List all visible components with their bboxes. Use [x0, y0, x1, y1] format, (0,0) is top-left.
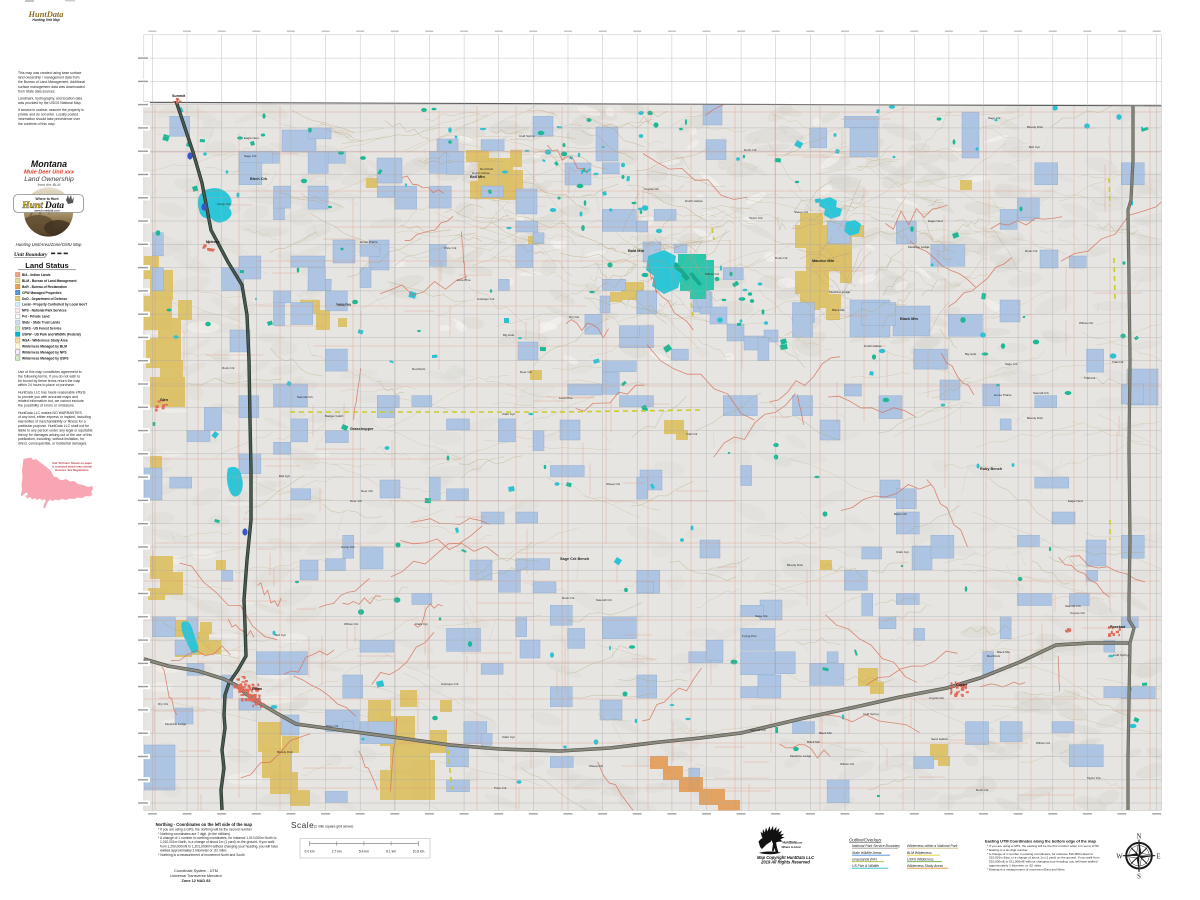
svg-text:Use of this map constitutes ag: Use of this map constitutes agreement to: [18, 370, 82, 374]
svg-text:Price Crk: Price Crk: [494, 786, 507, 790]
svg-text:from State data sources.: from State data sources.: [18, 89, 55, 93]
svg-text:Medicine Lodge: Medicine Lodge: [790, 754, 812, 758]
svg-text:Rock Crk: Rock Crk: [1025, 249, 1038, 253]
svg-text:Sheep Crk: Sheep Crk: [606, 482, 621, 486]
svg-text:Price Crk: Price Crk: [326, 724, 339, 728]
svg-text:Taylor Crk: Taylor Crk: [749, 216, 763, 220]
svg-text:Willow Crk: Willow Crk: [344, 622, 359, 626]
svg-text:E: E: [1156, 853, 1160, 860]
svg-text:Medicine Lodge: Medicine Lodge: [908, 245, 930, 249]
svg-text:S: S: [1137, 874, 1141, 881]
svg-text:Eagle Nest: Eagle Nest: [1068, 499, 1083, 503]
svg-text:Bald Mtn: Bald Mtn: [628, 249, 645, 253]
svg-text:USFS Wilderness: USFS Wilderness: [907, 858, 934, 862]
svg-text:Grasslands (NF): Grasslands (NF): [852, 858, 877, 862]
svg-text:Bloody Dick: Bloody Dick: [277, 750, 293, 754]
svg-text:(2 mile square grid above): (2 mile square grid above): [314, 825, 353, 829]
svg-text:particular purpose. HuntData: particular purpose. HuntData LLC shall n…: [18, 424, 89, 428]
svg-text:Sawmill Crk: Sawmill Crk: [297, 395, 313, 399]
svg-text:Wilderness Managed by USFS: Wilderness Managed by USFS: [22, 356, 69, 360]
svg-text:Antelope Crk: Antelope Crk: [477, 297, 495, 301]
svg-text:Deer Crk: Deer Crk: [520, 370, 533, 374]
svg-text:the following terms. If you: the following terms. If you do not wish …: [18, 374, 80, 378]
svg-text:Melrose: Melrose: [206, 240, 220, 244]
svg-text:* Easting is a measurement of: * Easting is a measurement of movement E…: [987, 867, 1065, 871]
svg-text:Rock Crk: Rock Crk: [222, 366, 235, 370]
svg-text:Dutch Hollow: Dutch Hollow: [864, 344, 883, 348]
svg-text:Hunting Unit Map: Hunting Unit Map: [32, 18, 59, 22]
svg-text:Birch Crk: Birch Crk: [250, 177, 268, 181]
svg-text:Wilderness Managed by NPS: Wilderness Managed by NPS: [22, 350, 67, 354]
svg-text:Local - Property Controlled by: Local - Property Controlled by Local Gov…: [22, 303, 88, 307]
svg-text:the Bureau of Land Management.: the Bureau of Land Management. Additiona…: [18, 80, 85, 84]
svg-text:Lone Pine: Lone Pine: [559, 396, 573, 400]
svg-text:BLM Wilderness: BLM Wilderness: [907, 851, 932, 855]
svg-text:publication, including, withou: publication, including, without limitati…: [18, 437, 85, 441]
svg-text:8.1 km: 8.1 km: [386, 850, 396, 854]
svg-text:Sage Crk: Sage Crk: [755, 614, 768, 618]
svg-text:Outline/Overlays: Outline/Overlays: [849, 838, 882, 843]
svg-text:Rock Crk: Rock Crk: [976, 788, 989, 792]
svg-text:Black Mtn: Black Mtn: [807, 740, 821, 744]
svg-text:Wilderness Managed by BLM: Wilderness Managed by BLM: [22, 344, 67, 348]
svg-text:Custer: Custer: [956, 683, 968, 687]
svg-text:from the BLM: from the BLM: [38, 183, 62, 187]
svg-text:Montana: Montana: [31, 159, 67, 169]
svg-text:NPS - National Park Services: NPS - National Park Services: [22, 309, 67, 313]
svg-text:Sawmill Crk: Sawmill Crk: [1033, 391, 1049, 395]
svg-text:Horse Prairie: Horse Prairie: [360, 240, 378, 244]
svg-text:private and do not enter. Loc: private and do not enter. Locally posted: [18, 113, 78, 117]
svg-text:National Park Service Boundary: National Park Service Boundary: [852, 844, 900, 848]
svg-text:the possibility of errors or o: the possibility of errors or omissions.: [18, 404, 75, 408]
svg-text:Frying Pan: Frying Pan: [742, 634, 757, 638]
svg-text:Dry Crk: Dry Crk: [158, 702, 169, 706]
svg-text:warranties of merchantability: warranties of merchantability or fitness…: [18, 420, 86, 424]
svg-text:closures. See Regulations.: closures. See Regulations.: [55, 468, 89, 472]
svg-text:Rock Crk: Rock Crk: [562, 596, 575, 600]
svg-text:Basin Crk: Basin Crk: [894, 512, 908, 516]
svg-text:Sand Hollow: Sand Hollow: [931, 737, 949, 741]
svg-text:Big Hole: Big Hole: [503, 333, 515, 337]
svg-text:W: W: [1116, 853, 1123, 860]
svg-text:Easting UTM Coordinates along: Easting UTM Coordinates along the bottom…: [985, 839, 1097, 844]
svg-text:of any kind, either express or: of any kind, either express or implied, …: [18, 415, 91, 419]
svg-text:Dry Crk: Dry Crk: [569, 315, 580, 319]
svg-text:Red Rock: Red Rock: [480, 167, 494, 171]
svg-text:* Northing is a measurement of: * Northing is a measurement of movement …: [158, 853, 245, 857]
svg-text:Bell Mtn: Bell Mtn: [470, 175, 485, 179]
svg-text:2.7 km: 2.7 km: [332, 850, 342, 854]
svg-text:Coyote Crk: Coyote Crk: [644, 187, 660, 191]
svg-text:N: N: [1137, 834, 1142, 841]
svg-text:Ruby Bench: Ruby Bench: [980, 467, 1003, 471]
svg-text:Trail Crk: Trail Crk: [1084, 376, 1096, 380]
svg-text:WSA - Wilderness Study Area: WSA - Wilderness Study Area: [22, 338, 68, 342]
svg-text:Medicine Lodge: Medicine Lodge: [165, 722, 187, 726]
svg-text:Sawmill Crk: Sawmill Crk: [1065, 604, 1081, 608]
svg-text:Rosebud: Rosebud: [1110, 625, 1125, 629]
svg-text:Antelope Crk: Antelope Crk: [441, 682, 459, 686]
svg-text:Northing - Coordinates on the: Northing - Coordinates on the left side …: [156, 822, 253, 827]
svg-text:Maurice Mtn: Maurice Mtn: [812, 259, 835, 263]
svg-text:DoD - Department of Defense: DoD - Department of Defense: [22, 297, 67, 301]
svg-text:Taylor Crk: Taylor Crk: [1087, 776, 1101, 780]
svg-text:be bound by these terms return: be bound by these terms return the map: [18, 379, 80, 383]
svg-text:Land Ownership: Land Ownership: [24, 176, 74, 183]
svg-text:Pvt - Private Land: Pvt - Private Land: [22, 315, 49, 319]
svg-text:HuntData LLC makes NO WARRANTI: HuntData LLC makes NO WARRANTIES: [18, 411, 83, 415]
svg-text:Hunting Unit/Area/Zone/GMU Map: Hunting Unit/Area/Zone/GMU Map: [16, 242, 82, 247]
svg-text:This map was created using bas: This map was created using base surface: [18, 71, 82, 75]
svg-text:Sawmill Crk: Sawmill Crk: [596, 598, 612, 602]
svg-text:Sage Crk Bench: Sage Crk Bench: [560, 557, 590, 561]
svg-text:Dutch Hollow: Dutch Hollow: [685, 199, 704, 203]
svg-text:was provided by the USGS Natio: was provided by the USGS National Map.: [18, 101, 81, 105]
svg-text:Lone Pine: Lone Pine: [457, 278, 471, 282]
svg-text:Red Rock: Red Rock: [987, 654, 1001, 658]
svg-text:Deer Crk: Deer Crk: [361, 489, 374, 493]
svg-text:Willow Crk: Willow Crk: [840, 762, 855, 766]
svg-text:BoR - Bureau of Reclamation: BoR - Bureau of Reclamation: [22, 285, 67, 289]
svg-text:Badger Gulch: Badger Gulch: [325, 414, 344, 418]
svg-text:direct, consequential, or inci: direct, consequential, or incidental dam…: [18, 442, 87, 446]
svg-text:Where to Hunt: Where to Hunt: [782, 845, 802, 849]
svg-text:BIA - Indian Lands: BIA - Indian Lands: [22, 273, 51, 277]
svg-text:USFS - US Forest Service: USFS - US Forest Service: [22, 327, 62, 331]
svg-text:Black Mtn: Black Mtn: [900, 317, 919, 321]
svg-text:US Fish & Wildlife: US Fish & Wildlife: [852, 864, 879, 868]
svg-text:Black Mtn: Black Mtn: [997, 650, 1011, 654]
svg-text:Eagle Nest: Eagle Nest: [928, 219, 943, 223]
svg-text:Dillon: Dillon: [252, 687, 262, 691]
svg-text:Zone 12 NAD 83: Zone 12 NAD 83: [182, 879, 211, 883]
svg-text:Sheep Crk: Sheep Crk: [589, 764, 604, 768]
svg-text:2019 All Rights Reserved: 2019 All Rights Reserved: [760, 860, 810, 865]
svg-text:Black Mtn: Black Mtn: [832, 308, 846, 312]
svg-text:Unit Boundary: Unit Boundary: [14, 252, 48, 258]
svg-text:USFW - US Park and Wildlife (F: USFW - US Park and Wildlife (Federal): [22, 333, 81, 337]
svg-text:Bloody Dick: Bloody Dick: [1027, 125, 1043, 129]
svg-text:Cold Spring: Cold Spring: [519, 134, 535, 138]
svg-text:Rock Crk: Rock Crk: [775, 256, 788, 260]
svg-text:Wilderness Study Areas: Wilderness Study Areas: [907, 864, 943, 868]
svg-text:Camp Crk: Camp Crk: [341, 545, 355, 549]
svg-text:Bloody Dick: Bloody Dick: [787, 563, 803, 567]
svg-text:Willow Crk: Willow Crk: [1036, 741, 1051, 745]
svg-text:Trail Crk: Trail Crk: [1112, 360, 1124, 364]
svg-text:to provide you with accurate m: to provide you with accurate maps and: [18, 395, 78, 399]
svg-text:Camp Crk: Camp Crk: [217, 202, 231, 206]
svg-text:Universal Transverse Mercator: Universal Transverse Mercator: [170, 874, 222, 878]
svg-text:Willow Crk: Willow Crk: [1079, 321, 1094, 325]
svg-text:theory for damages arising out: theory for damages arising out of the us…: [18, 433, 92, 437]
svg-text:Cold Spring: Cold Spring: [863, 712, 879, 716]
svg-text:Rock Crk: Rock Crk: [744, 148, 757, 152]
svg-text:Unit 'Portions' Shown on paper: Unit 'Portions' Shown on paper: [52, 461, 92, 465]
svg-text:surface management data was do: surface management data was downloaded: [18, 85, 85, 89]
svg-text:Big Hole: Big Hole: [965, 352, 977, 356]
svg-text:liable to any person under any: liable to any person under any legal or …: [18, 428, 93, 432]
svg-text:Bloody Dick: Bloody Dick: [1027, 416, 1043, 420]
svg-text:Trail Crk: Trail Crk: [686, 432, 698, 436]
svg-text:Horse Prairie: Horse Prairie: [994, 393, 1012, 397]
svg-text:Eagle Nest: Eagle Nest: [244, 136, 259, 140]
svg-text:Willow Crk: Willow Crk: [337, 303, 352, 307]
svg-text:land ownership / management da: land ownership / management data from: [18, 76, 80, 80]
svg-text:Willow Crk: Willow Crk: [705, 272, 720, 276]
svg-text:Bell Cyn: Bell Cyn: [275, 633, 287, 637]
svg-text:Clark Cyn: Clark Cyn: [896, 550, 910, 554]
svg-text:within 24 hours to place of pu: within 24 hours to place of purchase.: [18, 383, 75, 387]
svg-text:Cold Spring: Cold Spring: [1113, 653, 1129, 657]
svg-text:information should take preced: information should take precedence over: [18, 117, 81, 121]
svg-text:Scale: Scale: [291, 820, 314, 830]
svg-text:5.4 km: 5.4 km: [359, 850, 369, 854]
svg-text:Grasshopper: Grasshopper: [350, 427, 374, 431]
svg-text:the contents of this map.: the contents of this map.: [18, 122, 55, 126]
svg-text:Red Rock: Red Rock: [412, 367, 426, 371]
svg-text:HuntData LLC has made reasonab: HuntData LLC has made reasonable efforts: [18, 390, 86, 394]
svg-text:Clark Cyn: Clark Cyn: [502, 735, 516, 739]
svg-text:Coyote Crk: Coyote Crk: [1070, 611, 1086, 615]
svg-text:Sage Crk: Sage Crk: [244, 154, 257, 158]
svg-text:If access is unclear, assume t: If access is unclear, assume the propert…: [18, 108, 84, 112]
svg-text:Black Mtn: Black Mtn: [819, 731, 833, 735]
svg-text:Wilderness within a National P: Wilderness within a National Park: [907, 844, 958, 848]
svg-text:State - State Trust Lands: State - State Trust Lands: [22, 321, 60, 325]
svg-text:Summit: Summit: [172, 94, 186, 98]
svg-text:BLM - Bureau of Land Managemen: BLM - Bureau of Land Management: [22, 279, 77, 283]
svg-text:related information but, we ca: related information but, we cannot exclu…: [18, 399, 84, 403]
svg-text:Clark Cyn: Clark Cyn: [502, 412, 516, 416]
svg-text:10.8 km: 10.8 km: [413, 850, 425, 854]
svg-text:Sage Crk: Sage Crk: [988, 116, 1001, 120]
svg-text:0.0 km: 0.0 km: [305, 850, 315, 854]
svg-text:Mule Deer Unit xxx: Mule Deer Unit xxx: [24, 170, 75, 176]
svg-text:is restricted which may includ: is restricted which may include: [52, 464, 92, 468]
svg-text:Deer Crk: Deer Crk: [350, 499, 363, 503]
svg-text:www.huntdata.com: www.huntdata.com: [33, 208, 60, 212]
svg-text:Glen: Glen: [160, 398, 168, 402]
svg-text:Sawmill Crk: Sawmill Crk: [750, 728, 766, 732]
svg-text:Bell Cyn: Bell Cyn: [1029, 145, 1041, 149]
svg-text:Price Crk: Price Crk: [444, 246, 457, 250]
svg-text:Clark Cyn: Clark Cyn: [415, 622, 429, 626]
svg-text:CPW Managed Properties: CPW Managed Properties: [22, 291, 62, 295]
svg-text:Bell Cyn: Bell Cyn: [279, 474, 291, 478]
svg-text:State Wildlife Areas: State Wildlife Areas: [852, 851, 882, 855]
svg-text:Coyote Crk: Coyote Crk: [929, 696, 945, 700]
svg-text:Coordinate System - UTM: Coordinate System - UTM: [174, 869, 218, 873]
svg-text:Land Status: Land Status: [25, 261, 68, 270]
svg-text:Medicine Lodge: Medicine Lodge: [829, 290, 851, 294]
svg-text:Sage Crk: Sage Crk: [1005, 362, 1018, 366]
svg-text:Sheep Crk: Sheep Crk: [794, 210, 809, 214]
svg-text:Landmark, hydrography, and loc: Landmark, hydrography, and location data: [18, 96, 82, 100]
